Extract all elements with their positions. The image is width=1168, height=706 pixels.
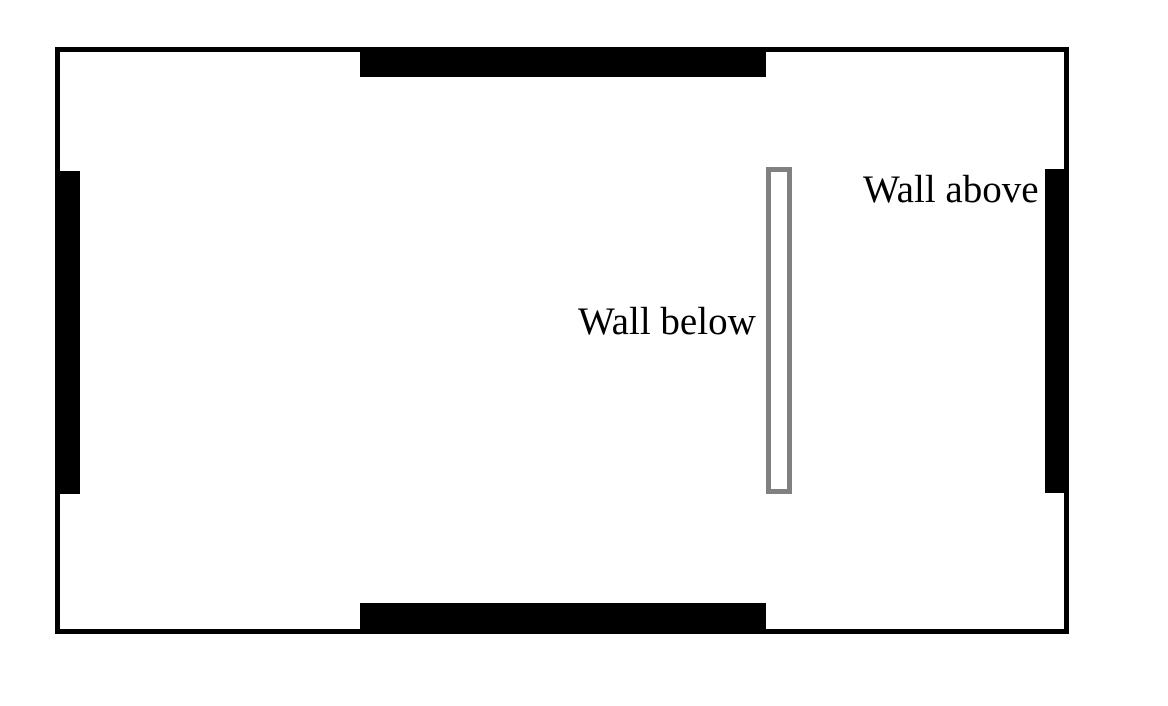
top-wall-segment bbox=[360, 47, 766, 77]
open-wall-outline bbox=[766, 167, 792, 494]
left-wall-segment bbox=[55, 171, 80, 494]
wall-above-label: Wall above bbox=[863, 170, 1039, 209]
wall-below-label: Wall below bbox=[578, 302, 756, 341]
floor-plan-diagram: Wall above Wall below bbox=[0, 0, 1168, 706]
bottom-wall-segment bbox=[360, 603, 766, 634]
room-outline bbox=[55, 47, 1069, 634]
right-wall-segment bbox=[1045, 169, 1069, 493]
